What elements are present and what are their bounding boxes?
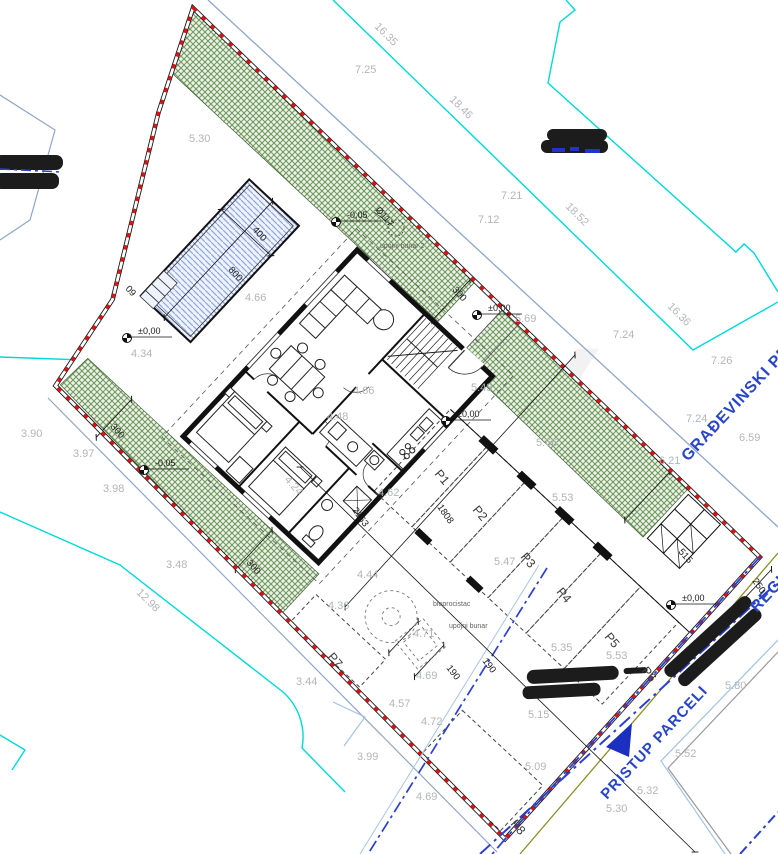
parcel-number-label: 7.21 bbox=[501, 190, 522, 202]
benchmark-icon bbox=[332, 218, 341, 227]
parcel-number-label: 5.32 bbox=[637, 785, 658, 797]
parcel-number-label: 4.66 bbox=[245, 292, 266, 304]
benchmark-label: ±0,00 bbox=[138, 326, 160, 336]
parcel-number-label: 5.53 bbox=[606, 650, 627, 662]
parcel-number-label: 4.72 bbox=[421, 716, 442, 728]
parcel-corner-bottom-center bbox=[333, 702, 365, 746]
building-line-label: GRAĐEVINSKI PRAVAC bbox=[678, 308, 778, 465]
benchmark-label: ±0,00 bbox=[488, 303, 510, 313]
parcel-number-label: 12.98 bbox=[134, 587, 162, 615]
parcel-number-label: 5.43 bbox=[471, 382, 492, 394]
access-arrow-icon bbox=[606, 723, 632, 757]
parcel-number-label: 4.69 bbox=[416, 791, 437, 803]
utility-label: upojni bunar bbox=[449, 623, 488, 630]
parcel-number-label: 7.12 bbox=[478, 214, 499, 226]
utility-label: upojni bunar 2 bbox=[380, 243, 424, 250]
parcel-number-label: 7.25 bbox=[355, 64, 376, 76]
parcel-number-label: 4.34 bbox=[131, 348, 152, 360]
parcel-number-label: 5.47 bbox=[494, 556, 515, 568]
parcel-number-label: 3.44 bbox=[296, 676, 317, 688]
benchmark-icon bbox=[473, 311, 482, 320]
redaction-topleft bbox=[0, 155, 63, 189]
parcel-outline-bottomleft-small bbox=[0, 735, 25, 770]
parcel-number-label: 4.48 bbox=[327, 411, 348, 423]
parcel-number-label: 3.99 bbox=[357, 751, 378, 763]
benchmark-label: -0,05 bbox=[155, 458, 176, 468]
redaction-topright bbox=[541, 129, 608, 153]
parcel-number-label: 16.35 bbox=[372, 21, 400, 49]
parcel-number-label: 4.71 bbox=[413, 628, 434, 640]
road-axis-corner bbox=[740, 812, 778, 854]
parcel-number-label: 5.30 bbox=[189, 133, 210, 145]
parcel-number-label: 4.57 bbox=[389, 698, 410, 710]
parcel-number-label: 5.09 bbox=[525, 761, 546, 773]
benchmark-label: ±0,00 bbox=[457, 409, 479, 419]
benchmark-icon bbox=[123, 334, 132, 343]
site-plan-canvas: DUX REAL ESTATE bbox=[0, 0, 778, 854]
parcel-number-label: 5.69 bbox=[515, 313, 536, 325]
parcel-number-label: 3.98 bbox=[103, 483, 124, 495]
parcel-number-label: 5.80 bbox=[725, 680, 746, 692]
parcel-number-label: 18.52 bbox=[563, 201, 591, 229]
parcel-number-label: 18.46 bbox=[447, 94, 475, 122]
parcel-number-label: 4.66 bbox=[353, 385, 374, 397]
benchmark-icon bbox=[442, 417, 451, 426]
parcel-number-label: 5.66 bbox=[536, 437, 557, 449]
benchmark-label: -0,05 bbox=[347, 210, 368, 220]
parcel-number-label: 6.21 bbox=[659, 455, 680, 467]
parcel-number-label: 3.97 bbox=[73, 448, 94, 460]
site-plan-svg: DUX REAL ESTATE bbox=[0, 0, 778, 854]
parcel-number-label: 4.44 bbox=[357, 569, 378, 581]
parcel-number-label: 4.69 bbox=[416, 670, 437, 682]
parcel-number-label: 5.52 bbox=[675, 748, 696, 760]
parcel-number-label: 7.26 bbox=[711, 355, 732, 367]
parcel-number-label: 4.62 bbox=[378, 487, 399, 499]
parcel-number-label: 5.35 bbox=[551, 642, 572, 654]
parcel-number-label: 5.15 bbox=[528, 709, 549, 721]
parcel-number-label: 6.59 bbox=[739, 432, 760, 444]
benchmark-icon bbox=[667, 601, 676, 610]
parcel-number-label: 3.90 bbox=[21, 428, 42, 440]
parcel-number-label: 7.24 bbox=[613, 329, 634, 341]
benchmark-icon bbox=[140, 466, 149, 475]
parcel-number-label: 3.48 bbox=[166, 559, 187, 571]
parcel-number-label: 5.53 bbox=[552, 492, 573, 504]
parcel-number-label: 7.24 bbox=[686, 413, 707, 425]
parcel-number-label: 5.30 bbox=[606, 803, 627, 815]
parcel-number-label: 4.36 bbox=[328, 600, 349, 612]
utility-label: bioprocistac bbox=[433, 601, 471, 608]
benchmark-label: ±0,00 bbox=[682, 593, 704, 603]
parcel-number-label: 16.36 bbox=[665, 301, 693, 329]
